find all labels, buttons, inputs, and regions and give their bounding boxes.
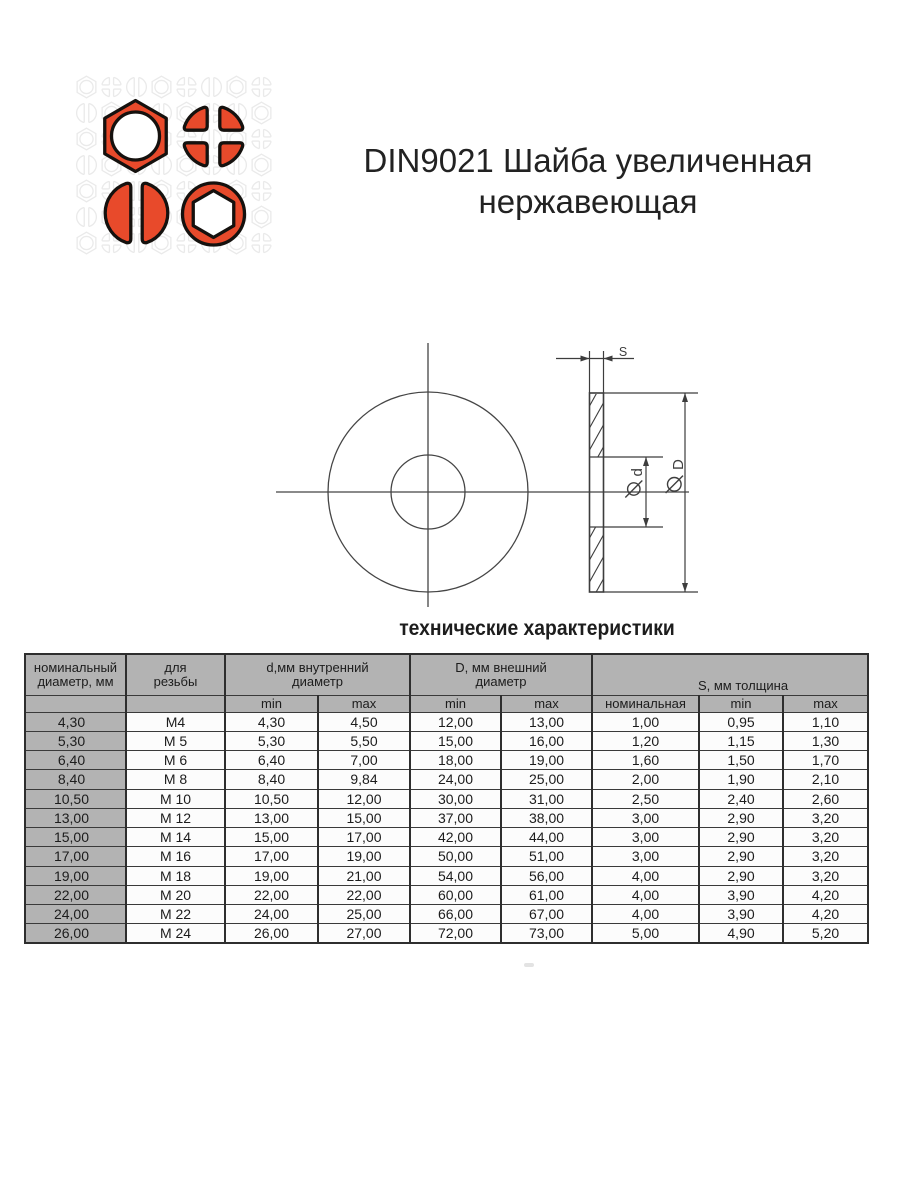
svg-text:S: S <box>619 345 627 359</box>
svg-text:D: D <box>670 459 687 470</box>
svg-text:d: d <box>629 468 646 476</box>
